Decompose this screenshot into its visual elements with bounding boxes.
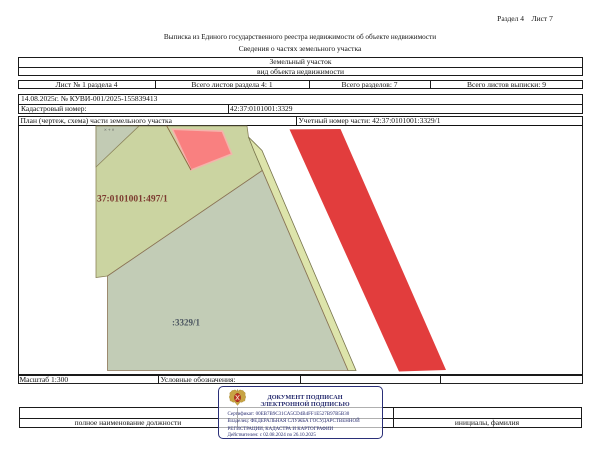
svg-text:×+×: ×+× — [104, 129, 115, 134]
svg-text:37:0101001:497/1: 37:0101001:497/1 — [97, 195, 168, 205]
svg-text::3329/1: :3329/1 — [172, 318, 200, 328]
